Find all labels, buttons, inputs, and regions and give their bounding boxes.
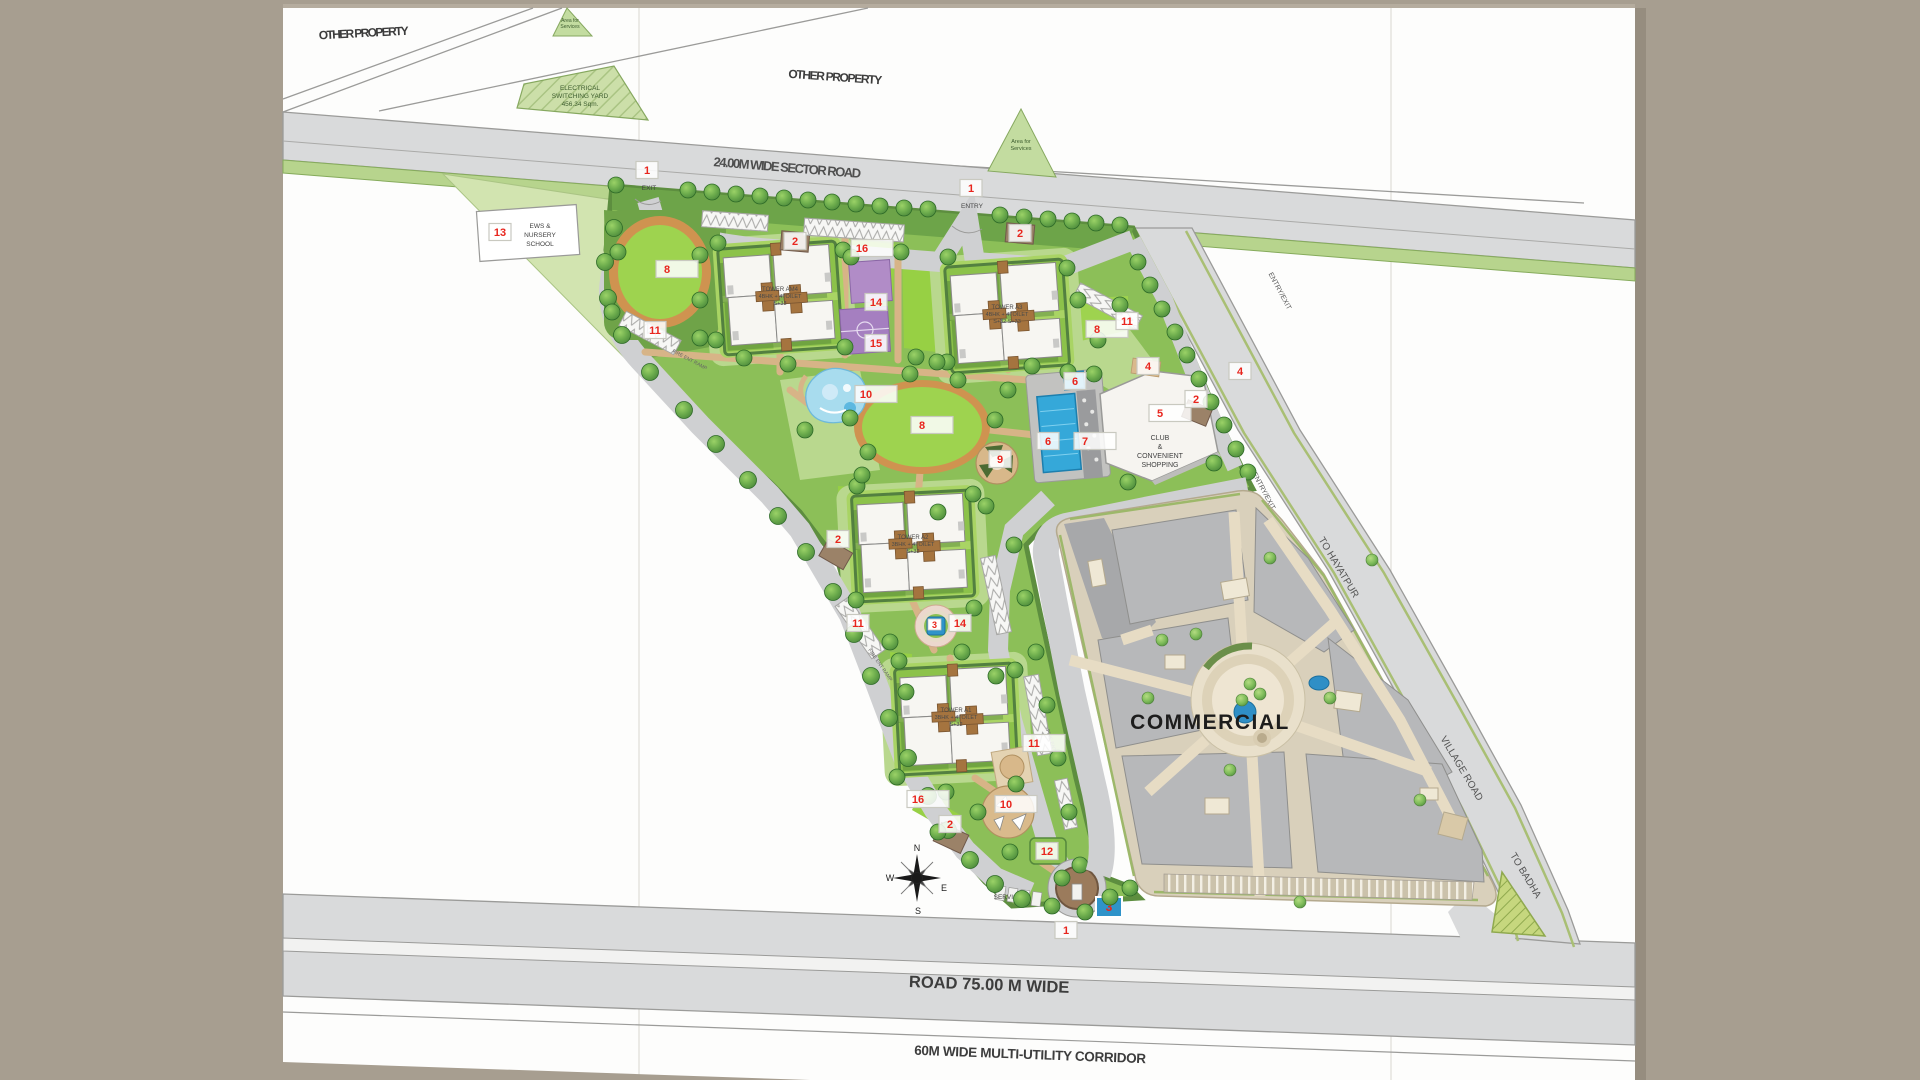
svg-text:TOWER A1: TOWER A1	[941, 708, 973, 714]
svg-text:3BHK + 4TOILET: 3BHK + 4TOILET	[935, 715, 978, 721]
svg-text:1: 1	[644, 165, 650, 177]
svg-text:1: 1	[1063, 925, 1069, 937]
svg-text:S+32: S+32	[950, 722, 963, 728]
svg-text:2: 2	[947, 819, 953, 831]
svg-text:15: 15	[870, 338, 882, 350]
svg-text:SCHOOL: SCHOOL	[526, 241, 554, 248]
svg-text:S+33: S+33	[774, 301, 787, 307]
svg-text:16: 16	[856, 243, 868, 255]
svg-text:Services: Services	[1010, 146, 1031, 152]
svg-text:456.34 Sqm.: 456.34 Sqm.	[562, 101, 599, 108]
svg-text:14: 14	[954, 618, 967, 630]
svg-text:S: S	[915, 906, 921, 916]
svg-text:12: 12	[1041, 846, 1053, 858]
svg-text:8: 8	[1094, 324, 1100, 336]
svg-text:9: 9	[997, 454, 1003, 466]
svg-text:1: 1	[968, 183, 974, 195]
svg-text:7: 7	[1082, 436, 1088, 448]
svg-text:13: 13	[494, 227, 506, 239]
svg-text:10: 10	[1000, 799, 1012, 811]
svg-text:N: N	[914, 843, 921, 853]
svg-text:Area for: Area for	[1011, 139, 1031, 145]
svg-text:4BHK + 4TOILET: 4BHK + 4TOILET	[759, 294, 802, 300]
svg-text:&: &	[1158, 444, 1163, 451]
svg-text:TOWER A3: TOWER A3	[992, 305, 1024, 311]
svg-text:6: 6	[1045, 436, 1051, 448]
svg-text:ENTRY: ENTRY	[961, 203, 984, 210]
svg-text:TOWER AM4: TOWER AM4	[762, 287, 799, 293]
svg-text:ELECTRICAL: ELECTRICAL	[560, 85, 600, 92]
svg-text:SWITCHING YARD: SWITCHING YARD	[552, 93, 609, 100]
svg-text:3: 3	[932, 620, 937, 630]
svg-text:16: 16	[912, 794, 924, 806]
svg-text:EXIT: EXIT	[642, 185, 656, 192]
svg-text:COMMERCIAL: COMMERCIAL	[1130, 711, 1290, 734]
svg-text:EWS &: EWS &	[530, 223, 552, 230]
svg-text:8: 8	[919, 420, 925, 432]
svg-text:2: 2	[835, 534, 841, 546]
svg-text:11: 11	[1028, 738, 1040, 750]
svg-text:2: 2	[1017, 228, 1023, 240]
svg-text:14: 14	[870, 297, 883, 309]
svg-text:4: 4	[1145, 361, 1152, 373]
svg-text:SHOPPING: SHOPPING	[1142, 462, 1179, 469]
svg-text:3BHK + 4TOILET: 3BHK + 4TOILET	[892, 542, 935, 548]
svg-text:W: W	[886, 873, 895, 883]
svg-text:10: 10	[860, 389, 872, 401]
svg-text:4BHK + 4TOILET: 4BHK + 4TOILET	[986, 312, 1029, 318]
svg-text:11: 11	[852, 618, 864, 630]
svg-text:TOWER A2: TOWER A2	[898, 535, 930, 541]
svg-text:6: 6	[1072, 376, 1078, 388]
svg-text:5: 5	[1157, 408, 1163, 420]
svg-text:4: 4	[1237, 366, 1244, 378]
svg-text:8: 8	[664, 264, 670, 276]
svg-text:CLUB: CLUB	[1151, 435, 1170, 442]
svg-text:NURSERY: NURSERY	[524, 232, 556, 239]
svg-text:11: 11	[649, 325, 661, 337]
svg-text:2: 2	[1193, 394, 1199, 406]
svg-text:CONVENIENT: CONVENIENT	[1137, 453, 1184, 460]
svg-text:Services: Services	[560, 24, 580, 30]
svg-text:2: 2	[792, 236, 798, 248]
svg-text:E: E	[941, 883, 947, 893]
svg-text:S+32: S+32	[907, 549, 920, 555]
svg-text:11: 11	[1121, 316, 1133, 328]
svg-text:S+32 S+33: S+32 S+33	[993, 319, 1021, 325]
